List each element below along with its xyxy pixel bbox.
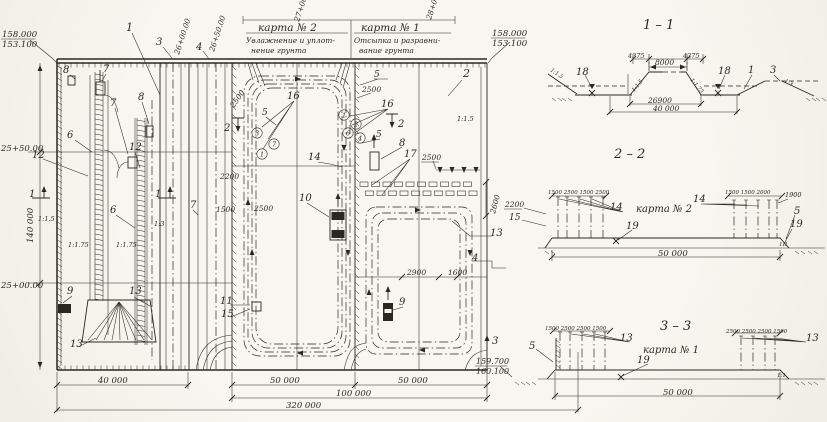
svg-text:2: 2 bbox=[353, 120, 358, 128]
slope-s1-core-left: 1:1.5 bbox=[631, 78, 645, 93]
dim-140000: 140 000 bbox=[26, 207, 36, 243]
pos-13-a: 13 bbox=[129, 286, 142, 297]
map2-subtitle-1: Увлажнение и уплот- bbox=[246, 36, 335, 45]
pos-13-e: 13 bbox=[806, 333, 819, 344]
slope-s1-right: 1:3 bbox=[783, 78, 794, 88]
section-3-3-title: 3 – 3 bbox=[660, 319, 691, 334]
route-point-3: 3 bbox=[252, 128, 262, 138]
pos-19-c: 19 bbox=[637, 355, 650, 366]
slope-s1-left: 1:1.5 bbox=[549, 68, 565, 81]
pos-5-a: 5 bbox=[262, 108, 268, 118]
pos-5-c: 5 bbox=[376, 130, 382, 140]
dim-2500-d: 2500 bbox=[421, 153, 441, 162]
pos-15-b: 15 bbox=[509, 213, 521, 223]
map2-ref-s2: карта № 2 bbox=[636, 204, 692, 215]
pos-8-a: 8 bbox=[63, 65, 69, 76]
pos-19-a: 19 bbox=[626, 221, 639, 232]
elevation-top-right-lower: 153.100 bbox=[492, 39, 528, 49]
drawing-sheet: 158.000153.10013426+00.0026+50.0027+0028… bbox=[0, 0, 827, 422]
slope-right-top: 1:1.5 bbox=[457, 115, 474, 123]
slope-d: 1:3 bbox=[154, 220, 164, 228]
svg-text:3: 3 bbox=[255, 129, 259, 137]
dim-2900: 2900 bbox=[406, 268, 426, 277]
pos-14-a: 14 bbox=[308, 152, 321, 163]
earthworks-technology-scheme-drawing: 158.000153.10013426+00.0026+50.0027+0028… bbox=[0, 0, 827, 422]
pos-3-b: 3 bbox=[770, 65, 776, 76]
pos-5-d: 5 bbox=[794, 206, 800, 217]
map1-subtitle-1: Отсыпка и разравни- bbox=[354, 36, 441, 45]
pos-10: 10 bbox=[299, 193, 312, 204]
elevation-bottom-right-lower: 160.100 bbox=[476, 367, 509, 376]
route-point-7: 7 bbox=[269, 139, 279, 149]
pos-13-d: 13 bbox=[620, 333, 633, 344]
dim-50000-s3: 50 000 bbox=[663, 388, 693, 398]
elevation-top-left-upper: 158.000 bbox=[2, 30, 38, 40]
dim-2200-a: 2200 bbox=[219, 172, 239, 181]
route-point-6: 6 bbox=[343, 128, 353, 138]
dim-50000-plan-a: 50 000 bbox=[270, 376, 300, 386]
pos-9-b: 9 bbox=[399, 297, 406, 308]
dim-2600: 2600 bbox=[488, 194, 502, 216]
route-point-1a: 1 bbox=[257, 149, 267, 159]
dim-50000-plan-b: 50 000 bbox=[398, 376, 428, 386]
pos-6-a: 6 bbox=[67, 130, 74, 141]
slope-s3-right: 1:1 bbox=[777, 373, 786, 379]
pos-18-b: 18 bbox=[718, 66, 731, 77]
dim-40000-plan: 40 000 bbox=[97, 376, 128, 386]
dims-s2-left: 1500 2500 1500 2500 bbox=[548, 190, 610, 196]
pos-5-b: 5 bbox=[374, 70, 380, 80]
dim-1500-a: 1500 bbox=[216, 205, 235, 214]
dims-s3-left: 1500 2500 2500 1500 bbox=[545, 326, 607, 332]
pos-13-b: 13 bbox=[70, 339, 83, 350]
route-point-1b: 1 bbox=[339, 110, 349, 120]
section-2-2-title: 2 – 2 bbox=[613, 147, 645, 162]
section-mark-2-left: 2 bbox=[223, 123, 230, 134]
svg-text:6: 6 bbox=[346, 129, 350, 137]
station-pk-25-00: 25+00.00 bbox=[0, 281, 44, 291]
section-mark-1-right: 1 bbox=[155, 189, 161, 200]
route-point-2: 2 bbox=[351, 119, 361, 129]
dim-320000-plan: 320 000 bbox=[286, 401, 322, 411]
route-point-4: 4 bbox=[355, 133, 365, 143]
dim-2200-s2: 2200 bbox=[504, 200, 524, 209]
elevation-top-right-upper: 158.000 bbox=[492, 29, 528, 39]
pos-18-a: 18 bbox=[576, 67, 589, 78]
section-mark-3: 3 bbox=[492, 336, 498, 347]
pos-19-b: 19 bbox=[790, 219, 803, 230]
pos-9-a: 9 bbox=[67, 286, 74, 297]
svg-text:1: 1 bbox=[260, 150, 264, 158]
pos-16-b: 16 bbox=[381, 99, 394, 110]
pos-1: 1 bbox=[126, 21, 133, 34]
pos-4-b: 4 bbox=[471, 253, 478, 264]
dim-2500-c: 2500 bbox=[361, 85, 381, 94]
section-1-1-title: 1 – 1 bbox=[643, 18, 674, 33]
station-axis-b: 26+50.00 bbox=[207, 14, 227, 53]
dim-4375-right: 4375 bbox=[682, 52, 700, 60]
dims-s2-right: 1500 1500 2000 bbox=[725, 190, 771, 196]
pos-11: 11 bbox=[220, 296, 233, 307]
dims-s3-right: 2500 2500 2500 1500 bbox=[725, 329, 788, 335]
pos-13-c: 13 bbox=[490, 228, 503, 239]
pos-7-c: 7 bbox=[190, 200, 197, 211]
pos-7-b: 7 bbox=[110, 98, 117, 109]
slope-c: 1:1.75 bbox=[116, 241, 137, 249]
elevation-bottom-right-upper: 159.700 bbox=[476, 357, 509, 366]
dim-100000-plan: 100 000 bbox=[336, 389, 372, 399]
dim-2500-b: 2500 bbox=[253, 204, 273, 213]
generated-linework bbox=[37, 56, 826, 413]
section-mark-2-right: 2 bbox=[397, 119, 404, 130]
pos-16-a: 16 bbox=[287, 91, 300, 102]
pos-17: 17 bbox=[404, 149, 417, 160]
pos-14-b: 14 bbox=[610, 202, 623, 213]
dim-1900-s2: 1900 bbox=[785, 191, 802, 199]
map1-ref-s3: карта № 1 bbox=[643, 345, 699, 356]
pos-3: 3 bbox=[156, 37, 162, 48]
pos-12-b: 12 bbox=[129, 142, 142, 153]
station-pk-25-50: 25+50.00 bbox=[0, 144, 44, 154]
map1-title: карта № 1 bbox=[361, 22, 420, 34]
elevation-top-left-lower: 153.100 bbox=[2, 40, 38, 50]
station-axis-d: 28+00 bbox=[424, 0, 441, 22]
pos-2: 2 bbox=[462, 67, 470, 80]
pos-6-b: 6 bbox=[110, 205, 117, 216]
pos-5-e: 5 bbox=[529, 341, 535, 352]
dim-4375-left: 4375 bbox=[627, 52, 645, 60]
labels-layer: 158.000153.10013426+00.0026+50.0027+0028… bbox=[0, 0, 819, 411]
slope-a: 1:1.5 bbox=[38, 215, 55, 223]
slope-b: 1:1.75 bbox=[68, 241, 89, 249]
dim-50000-s2: 50 000 bbox=[658, 249, 688, 259]
dim-40000-s1: 40 000 bbox=[652, 104, 679, 113]
pos-1-b: 1 bbox=[748, 65, 754, 76]
pos-8-b: 8 bbox=[138, 92, 144, 103]
map1-subtitle-2: вание грунта bbox=[359, 46, 414, 55]
pos-15-a: 15 bbox=[221, 309, 234, 320]
pos-14-c: 14 bbox=[693, 194, 706, 205]
svg-text:1: 1 bbox=[342, 111, 346, 119]
slope-s1-core-right: 1:1.75 bbox=[688, 77, 704, 95]
map2-subtitle-2: нение грунта bbox=[251, 46, 306, 55]
pos-8-c: 8 bbox=[399, 138, 405, 149]
map2-title: карта № 2 bbox=[258, 22, 317, 34]
dim-8000: 8000 bbox=[655, 58, 674, 67]
linework bbox=[28, 16, 825, 412]
dim-1600: 1600 bbox=[448, 268, 467, 277]
svg-text:7: 7 bbox=[272, 140, 277, 148]
pos-7-a: 7 bbox=[103, 64, 110, 75]
pos-4: 4 bbox=[195, 42, 202, 53]
section-mark-1-left: 1 bbox=[29, 189, 35, 200]
svg-text:4: 4 bbox=[357, 134, 362, 142]
station-axis-a: 26+00.00 bbox=[172, 17, 192, 56]
slope-s2-right: 1:1 bbox=[779, 242, 788, 248]
